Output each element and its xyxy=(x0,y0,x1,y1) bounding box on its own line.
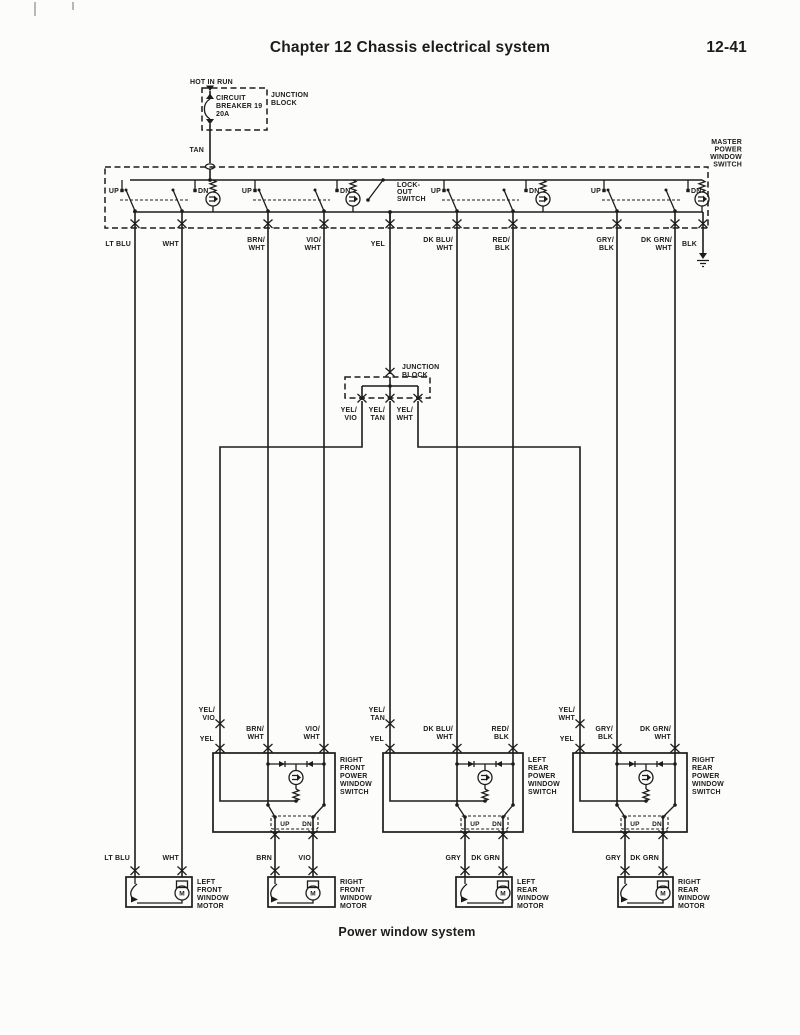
illumination-lamp-icon xyxy=(289,771,303,785)
wire-label-lt-blu: LT BLU xyxy=(105,241,131,248)
right-front-power-window-switch: UP DN RIGHT FRONT POWER WINDOW SWITCH xyxy=(213,744,372,877)
up-label: UP xyxy=(109,188,119,195)
wire-label-yel-wht: WHT xyxy=(558,715,575,722)
motor-label: REAR xyxy=(517,887,538,894)
illumination-lamp-icon xyxy=(639,771,653,785)
harness-wires xyxy=(135,211,703,877)
wire-label-gry-blk: GRY/ xyxy=(595,726,613,733)
right-rear-window-motor: M RIGHT REAR WINDOW MOTOR xyxy=(618,867,710,911)
switch-label: SWITCH xyxy=(528,789,557,796)
wire-label-lt-blu: LT BLU xyxy=(104,855,130,862)
switch-label: WINDOW xyxy=(340,781,372,788)
master-switch-label: POWER xyxy=(715,147,742,154)
motor-m: M xyxy=(179,891,185,898)
switch-label: RIGHT xyxy=(692,757,715,764)
page-number: 12-41 xyxy=(706,39,747,56)
up-label: UP xyxy=(470,821,480,828)
wire-labels-row1: LT BLU WHT BRN/ WHT VIO/ WHT YEL DK BLU/… xyxy=(105,237,697,252)
wire-label-gry-blk: GRY/ xyxy=(596,237,614,244)
breaker-contact-icon xyxy=(206,119,214,125)
lockout-label: LOCK- xyxy=(397,182,421,189)
master-switch-group-left-rear: UP DN xyxy=(431,180,550,213)
resistor-icon xyxy=(540,180,546,192)
wire-label-yel-vio: YEL/ xyxy=(199,707,215,714)
wire-label-yel-wht: YEL/ xyxy=(397,407,413,414)
wiring-diagram: Chapter 12 Chassis electrical system 12-… xyxy=(0,0,800,1035)
feed-circuit-breaker: HOT IN RUN JUNCTION BLOCK CIRCUIT BREAKE… xyxy=(190,79,309,180)
hot-in-run-label: HOT IN RUN xyxy=(190,79,233,86)
wire-label-dk-blu-wht: WHT xyxy=(436,245,453,252)
wire-label-vio-wht: VIO/ xyxy=(306,237,321,244)
motor-label: FRONT xyxy=(340,887,366,894)
wire-label-tan: TAN xyxy=(190,147,204,154)
switch-label: REAR xyxy=(692,765,713,772)
resistor-icon xyxy=(210,180,216,192)
master-switch-label: WINDOW xyxy=(710,154,742,161)
breaker-contact-icon xyxy=(206,94,214,100)
motor-m: M xyxy=(500,891,506,898)
motor-label: WINDOW xyxy=(517,895,549,902)
up-label: UP xyxy=(630,821,640,828)
wire-label-vio: VIO xyxy=(298,855,311,862)
wire-label-gry: GRY xyxy=(605,855,621,862)
switch-label: SWITCH xyxy=(340,789,369,796)
wire-label-red-blk: BLK xyxy=(494,734,509,741)
wire-label-yel-vio: VIO xyxy=(344,415,357,422)
master-switch-connectors xyxy=(131,220,708,229)
motor-label: MOTOR xyxy=(197,903,224,910)
switch-label: LEFT xyxy=(528,757,547,764)
wire-label-yel-vio: YEL/ xyxy=(341,407,357,414)
wire-label-yel: YEL xyxy=(560,736,575,743)
junction-block-label: JUNCTION xyxy=(402,364,439,371)
up-label: UP xyxy=(242,188,252,195)
circuit-breaker-icon xyxy=(204,99,210,119)
wire-label-wht: WHT xyxy=(162,855,179,862)
wire-label-dk-grn-wht: DK GRN/ xyxy=(640,726,671,733)
junction-block-label: BLOCK xyxy=(402,372,428,379)
motor-label: MOTOR xyxy=(517,903,544,910)
yel-vio-route xyxy=(220,401,362,801)
switch-label: REAR xyxy=(528,765,549,772)
switch-label: POWER xyxy=(340,773,367,780)
ground-icon xyxy=(699,253,707,259)
chapter-title: Chapter 12 Chassis electrical system xyxy=(270,39,550,56)
switch-label: SWITCH xyxy=(692,789,721,796)
dn-label: DN xyxy=(302,821,312,828)
master-switch-label: SWITCH xyxy=(713,162,742,169)
wire-label-red-blk: RED/ xyxy=(492,237,510,244)
lockout-switch: LOCK- OUT SWITCH xyxy=(366,178,426,225)
wire-labels-row3: LT BLU WHT BRN VIO GRY DK GRN GRY DK GRN xyxy=(104,855,659,862)
wire-label-yel-vio: VIO xyxy=(202,715,215,722)
illumination-lamp-icon xyxy=(695,192,709,206)
up-label: UP xyxy=(591,188,601,195)
ground-symbol xyxy=(697,253,709,267)
switch-label: RIGHT xyxy=(340,757,363,764)
lockout-label: OUT xyxy=(397,189,413,196)
up-label: UP xyxy=(280,821,290,828)
motor-label: FRONT xyxy=(197,887,223,894)
resistor-icon xyxy=(350,180,356,192)
wire-label-dk-blu-wht: DK BLU/ xyxy=(423,726,453,733)
master-switch-label: MASTER xyxy=(711,139,742,146)
wire-label-yel: YEL xyxy=(371,241,386,248)
motor-label: MOTOR xyxy=(340,903,367,910)
wire-label-yel-tan: YEL/ xyxy=(369,707,385,714)
right-front-window-motor: M RIGHT FRONT WINDOW MOTOR xyxy=(268,867,372,911)
yel-wht-route xyxy=(418,401,646,801)
junction-block-label: BLOCK xyxy=(271,100,297,107)
motor-label: MOTOR xyxy=(678,903,705,910)
circuit-breaker-label: CIRCUIT xyxy=(216,95,246,102)
up-label: UP xyxy=(431,188,441,195)
dn-label: DN xyxy=(198,188,209,195)
lockout-label: SWITCH xyxy=(397,196,426,203)
motor-label: WINDOW xyxy=(678,895,710,902)
left-front-window-motor: M LEFT FRONT WINDOW MOTOR xyxy=(126,867,229,911)
wire-label-wht: WHT xyxy=(162,241,179,248)
figure-caption: Power window system xyxy=(338,925,475,939)
wire-label-dk-grn-wht: DK GRN/ xyxy=(641,237,672,244)
switch-label: FRONT xyxy=(340,765,366,772)
master-switch-group-left-front: UP DN xyxy=(109,180,220,213)
circuit-breaker-label: 20A xyxy=(216,111,229,118)
wire-label-dk-grn-wht: WHT xyxy=(655,245,672,252)
wire-label-brn-wht: WHT xyxy=(248,245,265,252)
master-switch-group-right-rear: UP DN xyxy=(591,180,709,213)
motor-m: M xyxy=(310,891,316,898)
dn-label: DN xyxy=(492,821,502,828)
wire-label-red-blk: RED/ xyxy=(491,726,509,733)
wire-label-vio-wht: WHT xyxy=(304,245,321,252)
page-header: Chapter 12 Chassis electrical system 12-… xyxy=(35,2,747,56)
yel-tan-route xyxy=(390,401,485,801)
illumination-lamp-icon xyxy=(206,192,220,206)
wire-label-dk-grn: DK GRN xyxy=(630,855,659,862)
wire-label-yel-tan: TAN xyxy=(371,715,385,722)
switch-label: WINDOW xyxy=(528,781,560,788)
wire-label-gry-blk: BLK xyxy=(599,245,614,252)
switch-label: WINDOW xyxy=(692,781,724,788)
switch-label: POWER xyxy=(692,773,719,780)
motor-label: WINDOW xyxy=(197,895,229,902)
wire-label-blk: BLK xyxy=(682,241,697,248)
wire-labels-row2: YEL/ VIO YEL BRN/ WHT VIO/ WHT YEL/ TAN … xyxy=(199,707,672,743)
wire-label-vio-wht: WHT xyxy=(303,734,320,741)
wire-label-gry: GRY xyxy=(445,855,461,862)
illumination-lamp-icon xyxy=(478,771,492,785)
wire-label-brn: BRN xyxy=(256,855,272,862)
motor-label: LEFT xyxy=(517,879,536,886)
wire-label-brn-wht: WHT xyxy=(247,734,264,741)
manual-page: Chapter 12 Chassis electrical system 12-… xyxy=(0,0,800,1035)
motor-m: M xyxy=(660,891,666,898)
wire-label-red-blk: BLK xyxy=(495,245,510,252)
wire-label-gry-blk: BLK xyxy=(598,734,613,741)
wire-label-yel-wht: WHT xyxy=(396,415,413,422)
wire-label-vio-wht: VIO/ xyxy=(305,726,320,733)
wire-label-yel-tan: YEL/ xyxy=(369,407,385,414)
motor-label: RIGHT xyxy=(678,879,701,886)
motor-label: RIGHT xyxy=(340,879,363,886)
illumination-lamp-icon xyxy=(346,192,360,206)
dn-label: DN xyxy=(652,821,662,828)
switch-label: POWER xyxy=(528,773,555,780)
circuit-breaker-label: BREAKER 19 xyxy=(216,103,262,110)
wire-label-dk-grn-wht: WHT xyxy=(654,734,671,741)
wire-label-yel: YEL xyxy=(200,736,215,743)
wire-label-yel-tan: TAN xyxy=(371,415,385,422)
illumination-lamp-icon xyxy=(536,192,550,206)
wire-label-dk-grn: DK GRN xyxy=(471,855,500,862)
wire-label-yel-wht: YEL/ xyxy=(559,707,575,714)
wire-label-yel: YEL xyxy=(370,736,385,743)
motor-label: WINDOW xyxy=(340,895,372,902)
wire-label-brn-wht: BRN/ xyxy=(246,726,264,733)
wire-label-brn-wht: BRN/ xyxy=(247,237,265,244)
motor-label: REAR xyxy=(678,887,699,894)
motor-label: LEFT xyxy=(197,879,216,886)
wire-label-dk-blu-wht: WHT xyxy=(436,734,453,741)
junction-block-label: JUNCTION xyxy=(271,92,308,99)
wire-label-dk-blu-wht: DK BLU/ xyxy=(423,237,453,244)
master-switch-group-right-front: UP DN xyxy=(242,180,360,213)
